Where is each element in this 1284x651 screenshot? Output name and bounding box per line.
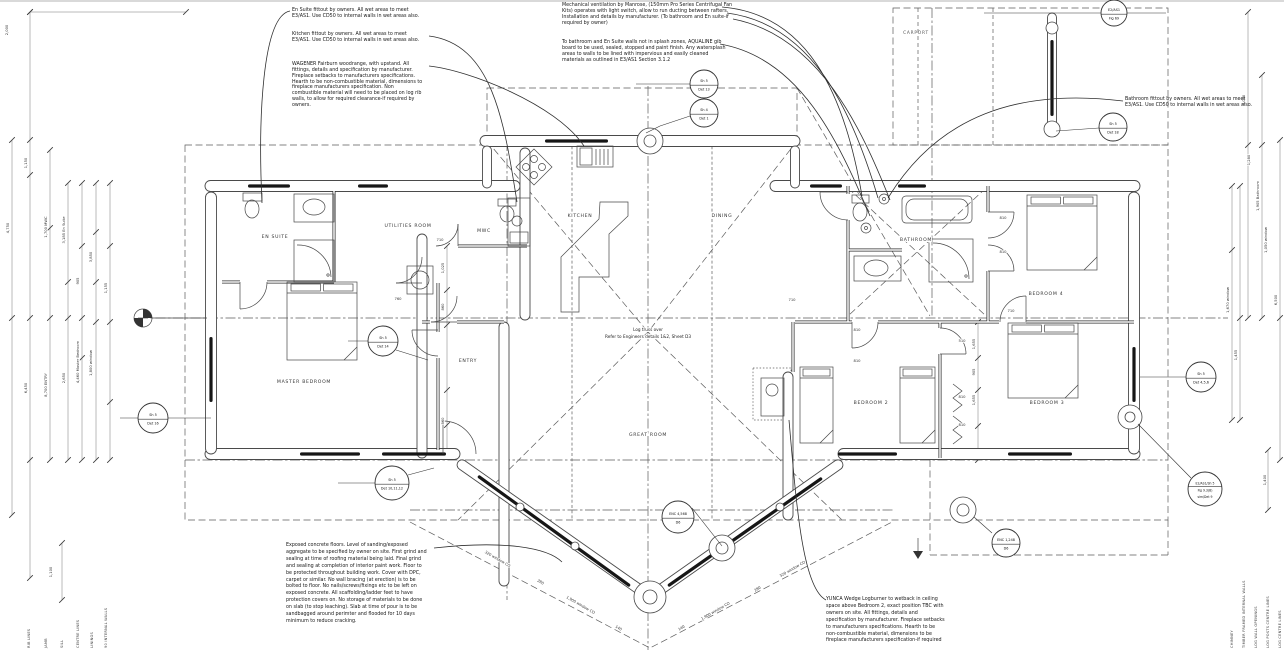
detail-marker-circle: [138, 403, 168, 433]
bed-fold-line: [922, 430, 935, 443]
dimension-label: 810: [999, 250, 1007, 254]
detail-marker-text: Det 16: [147, 421, 158, 425]
note-leader-line: [429, 66, 584, 146]
detail-marker-text: Det 1: [699, 116, 708, 120]
fixture: [294, 240, 334, 282]
detail-marker-circle: [368, 326, 398, 356]
dimension-label: 2,000: [5, 24, 9, 35]
bed-pillow: [1031, 197, 1060, 204]
fixture: [883, 198, 886, 201]
dimension-label: 1,900 window CO: [700, 601, 730, 621]
dimension-label: 860: [441, 303, 445, 311]
detail-marker-text: Det 10,11,12: [381, 486, 403, 490]
fixture: [929, 239, 973, 282]
dimension-label: 1,155: [104, 282, 108, 293]
dimension-label: 1,700 MWC: [44, 216, 48, 238]
fixture: [879, 194, 889, 204]
room-label: BATHROOM: [900, 237, 932, 243]
fixture: [902, 196, 972, 223]
detail-marker-circle: [662, 501, 694, 533]
bed: [800, 367, 833, 443]
note-logburner: YUNCA Wedge Logburner to wetback in ceil…: [826, 597, 946, 645]
window-glazing: [667, 477, 823, 588]
window-glazing: [209, 337, 212, 402]
log-post-joint: [643, 590, 657, 604]
detail-marker-text: ENC 1,248: [997, 538, 1015, 542]
dimension-label: 905: [76, 277, 80, 285]
detail-marker-text: Det 18: [1107, 130, 1118, 134]
fixture: [596, 149, 608, 165]
legend-label-right: CHIMNEY: [1230, 629, 1234, 648]
dimension-label: 760: [394, 297, 402, 301]
fixture: [539, 164, 546, 171]
log-post-joint: [644, 135, 656, 147]
detail-marker-text: Det 14: [377, 344, 388, 348]
dimension-label: 860: [441, 417, 445, 425]
detail-marker-text: Sh 5: [700, 79, 708, 83]
detail-marker-circle: [690, 99, 718, 127]
dimension-label: 4,460 Master Bedroom: [76, 341, 80, 384]
room-label: DINING: [712, 213, 733, 219]
dimension-label: 1,100: [49, 566, 53, 577]
detail-marker-circle: [1101, 0, 1127, 26]
log-wall: [520, 148, 530, 320]
detail-marker-circle: [1099, 113, 1127, 141]
fixture: [933, 243, 969, 279]
detail-marker-text: Sh 5: [379, 336, 387, 340]
detail-marker-text: Det 4,5,6: [1193, 380, 1209, 384]
bed: [287, 282, 357, 360]
room-label: ENTRY: [459, 358, 477, 364]
detail-marker-leader: [1138, 424, 1191, 478]
legend-label-left: LININGS: [90, 632, 94, 648]
detail-marker-text: E2/AS1: [1108, 8, 1120, 12]
fixture: [303, 199, 325, 215]
log-wall: [417, 234, 427, 458]
legend-label-right: LOG CENTRE LINES: [1278, 610, 1282, 648]
log-post-joint: [716, 542, 728, 554]
window-glazing: [300, 452, 360, 455]
detail-marker-leader: [692, 508, 722, 546]
bed-pillow: [291, 284, 320, 291]
note-leader-line: [727, 13, 878, 198]
legend-label-left: RIB LINES: [27, 628, 31, 648]
fixture: [531, 172, 538, 179]
dimension-label: 6,450: [24, 382, 28, 393]
window-glazing: [1050, 40, 1053, 116]
room-label: BEDROOM 2: [854, 400, 889, 406]
room-label: MASTER BEDROOM: [277, 379, 331, 385]
dashed-line: [487, 141, 648, 332]
internal-walls-group: [222, 186, 1134, 458]
detail-marker-leader: [408, 468, 434, 475]
log-post-joint: [1125, 412, 1135, 422]
dimension-label: 810: [853, 328, 861, 332]
detail-marker-text: ENC 4,568: [669, 512, 687, 516]
note-bathroom: Bathroom fittout by owners. All wet area…: [1125, 97, 1265, 109]
fixture: [965, 275, 967, 277]
note-en-suite: En Suite fittout by owners. All wet area…: [292, 8, 426, 20]
room-label: KITCHEN: [568, 213, 593, 219]
dashed-line: [648, 332, 842, 520]
log-post-joint: [1046, 22, 1058, 34]
fixture: [245, 200, 259, 218]
note-aqualine: To bathroom and En Suite walls not in sp…: [562, 40, 730, 63]
bed-pillow: [324, 284, 353, 291]
carport-label: CARPORT: [903, 30, 929, 36]
floor-plan-drawing: Sh 5Det 13Sh 4Det 1Sh 5Det 14Sh 5Det 16S…: [0, 0, 1284, 651]
detail-marker-text: Sh 5: [1197, 372, 1205, 376]
dimension-label: 1,655: [972, 394, 976, 405]
note-leader-line: [733, 19, 890, 200]
log-post-joint: [571, 542, 579, 550]
detail-marker-text: Fig 9.3(B): [1198, 488, 1213, 492]
dimension-label: 140: [677, 624, 686, 631]
dimension-label: 1,670 window: [1226, 287, 1230, 313]
legend-label-left: CENTRE LINES: [76, 619, 80, 648]
dimension-label: 3,185 En Suite: [62, 216, 66, 244]
dimension-label: 1,455: [1234, 349, 1238, 360]
detail-marker-text: Sh 5: [388, 478, 396, 482]
log-wall: [483, 146, 492, 188]
dimension-label: 710: [1007, 309, 1015, 313]
log-wall: [791, 146, 800, 188]
detail-marker-text: E2/AS1/Sh 5: [1196, 481, 1215, 485]
log-wall: [206, 192, 217, 454]
fixture: [531, 156, 538, 163]
fixture: [906, 199, 968, 220]
room-label: BEDROOM 3: [1030, 400, 1065, 406]
fixture: [577, 146, 613, 167]
fixture: [766, 384, 778, 396]
note-leader-line: [261, 11, 290, 203]
window-glazing: [810, 184, 842, 187]
dimension-label: 1,900 window CO: [565, 595, 595, 615]
detail-marker-text: Sh 4: [700, 108, 708, 112]
legend-label-left: 90 INTERNAL WALLS: [104, 607, 108, 648]
detail-marker-text: Fig 69: [1109, 16, 1119, 20]
fixture: [865, 227, 868, 230]
dimension-label: 810: [853, 359, 861, 363]
detail-marker-circle: [1186, 362, 1216, 392]
dimension-label: 2,650: [62, 372, 66, 383]
detail-marker-text: Det 13: [698, 87, 709, 91]
dashed-line: [797, 88, 930, 316]
dimension-label: 1,050 window: [1264, 227, 1268, 253]
room-label: UTILITIES ROOM: [384, 223, 431, 229]
fixture-solid: [913, 551, 923, 559]
log-truss-note-line2: Refer to Engineers details 1&2, Sheet D3: [605, 334, 691, 339]
dimension-label: 1,025: [441, 262, 445, 273]
dimension-label: 710: [788, 298, 796, 302]
detail-marker-text: sim/Det 9: [1198, 495, 1213, 499]
dimension-label: 280: [536, 579, 545, 586]
dimension-label: 810: [958, 423, 966, 427]
dimension-label: 810: [999, 216, 1007, 220]
fixture: [861, 223, 871, 233]
room-label: MWC: [477, 228, 491, 234]
bed-pillow: [803, 369, 830, 376]
fixture: [294, 194, 334, 222]
door-swing: [820, 192, 848, 220]
legend-label-left: JAMB: [44, 638, 48, 649]
window-glazing: [1132, 347, 1135, 402]
floor-plan-sheet: Sh 5Det 13Sh 4Det 1Sh 5Det 14Sh 5Det 16S…: [0, 0, 1284, 651]
note-wagener: WAGENER Fairburn woodrange, with upstand…: [292, 62, 424, 109]
bed-pillow: [1045, 325, 1074, 332]
bed-fold-line: [1065, 385, 1078, 398]
bed-fold-line: [1084, 257, 1097, 270]
dimension-label: 1,280: [1247, 154, 1251, 165]
dimension-label: 1,655: [972, 338, 976, 349]
dimension-label: 3,850: [89, 251, 93, 262]
dimension-label: 510: [958, 339, 966, 343]
dimension-label: 905: [972, 368, 976, 376]
window-glazing: [545, 139, 608, 142]
detail-marker-text: D6: [1004, 546, 1009, 550]
detail-marker-circle: [992, 529, 1020, 557]
detail-marker-circle: [690, 70, 718, 98]
detail-marker-circle: [375, 466, 409, 500]
bed-pillow: [903, 369, 932, 376]
window-glazing: [1008, 452, 1072, 455]
fixtures-group: [134, 146, 1097, 559]
window-glazing: [898, 184, 926, 187]
detail-marker-text: Sh 5: [149, 413, 157, 417]
note-ventilation: Mechanical ventilation by Manrose, (150m…: [562, 3, 736, 26]
room-label: GREAT ROOM: [629, 432, 667, 438]
fixture: [853, 203, 867, 221]
log-truss-note-line1: Log truss over: [633, 327, 663, 332]
dimension-label: 1,800 window: [89, 350, 93, 376]
fixture: [297, 245, 331, 277]
log-wall: [499, 322, 509, 586]
legend-label-right: LOG WALL OPENINGS: [1254, 606, 1258, 648]
legend-label-right: LOG POSTS CENTRE LINES: [1266, 596, 1270, 648]
log-post-joint: [776, 503, 784, 511]
fixture: [852, 195, 869, 203]
dimension-label: 1,400: [1263, 474, 1267, 485]
dimension-label: 4,750: [6, 222, 10, 233]
log-post-joint: [516, 503, 524, 511]
bed-fold-line: [344, 347, 357, 360]
room-label: EN SUITE: [262, 234, 289, 240]
room-label: BEDROOM 4: [1029, 291, 1064, 297]
fixture: [327, 274, 329, 276]
log-post-joint: [957, 504, 969, 516]
fixture-solid: [143, 309, 152, 318]
fixture: [580, 148, 592, 165]
fixture-solid: [134, 318, 143, 327]
detail-marker-leader: [1056, 128, 1099, 131]
dashed-line: [458, 332, 648, 520]
fixture: [864, 260, 888, 276]
legend-label-right: TIMBER FRAMED INTERNAL WALLS: [1242, 580, 1246, 649]
bed-fold-line: [820, 430, 833, 443]
window-glazing: [248, 184, 290, 187]
legend-label-left: SILL: [60, 640, 64, 648]
fixture: [953, 384, 962, 444]
dimension-label: 8,700 ENTRY: [44, 372, 48, 396]
dimension-label: 1,905 Bathroom: [1256, 181, 1260, 211]
dimension-label: 140: [614, 625, 623, 632]
door-swing: [988, 245, 1014, 271]
note-kitchen: Kitchen fittout by owners. All wet areas…: [292, 32, 426, 44]
dimension-label: 810: [958, 395, 966, 399]
bed-pillow: [1012, 325, 1041, 332]
detail-marker-leader: [974, 517, 992, 533]
door-swing: [852, 322, 878, 348]
window-glazing: [382, 452, 446, 455]
note-concrete: Exposed concrete floors. Level of sandin…: [286, 543, 428, 626]
dashed-outline: [185, 145, 1168, 520]
window-glazing: [838, 452, 897, 455]
dimension-label: 710: [436, 238, 444, 242]
detail-marker-text: Sh 5: [1109, 122, 1117, 126]
dashed-line: [648, 141, 797, 332]
detail-marker-text: D6: [676, 520, 681, 524]
window-glazing: [358, 184, 388, 187]
door-swing: [436, 224, 458, 246]
dimension-label: 6,500: [1274, 294, 1278, 305]
log-post-joint: [1044, 121, 1060, 137]
bed-pillow: [1064, 197, 1093, 204]
door-swing: [240, 282, 267, 309]
dimension-label: 1,150: [24, 157, 28, 168]
note-leader-line: [429, 36, 517, 202]
bed: [900, 367, 935, 443]
